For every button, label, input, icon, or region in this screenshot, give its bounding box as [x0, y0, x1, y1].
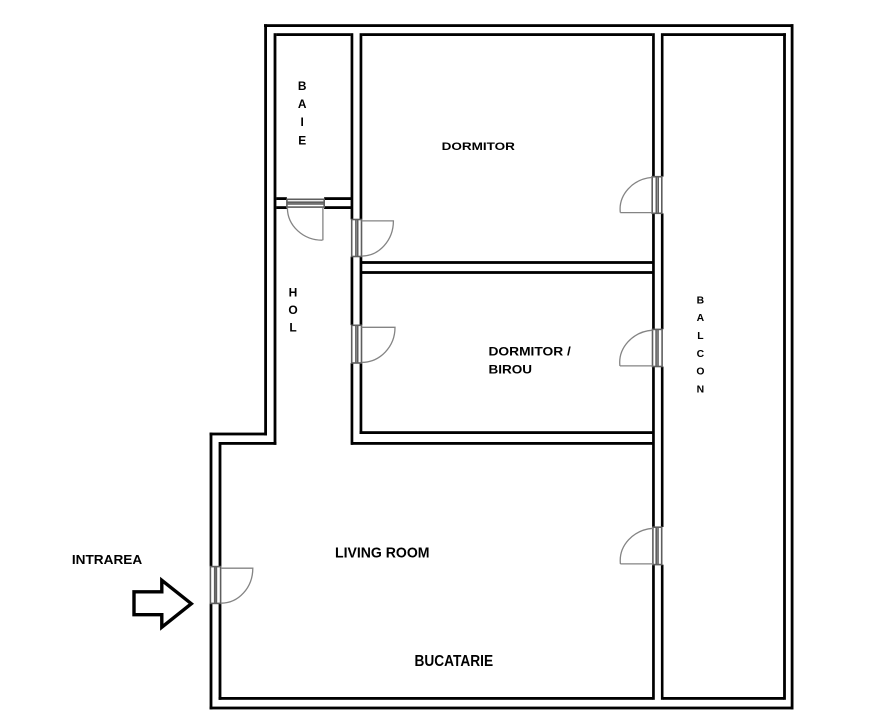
- svg-text:DORMITOR: DORMITOR: [442, 141, 515, 153]
- svg-text:L: L: [289, 321, 296, 335]
- svg-text:INTRAREA: INTRAREA: [72, 552, 142, 567]
- svg-text:E: E: [298, 133, 306, 147]
- svg-text:H: H: [289, 286, 298, 300]
- svg-text:B: B: [298, 79, 307, 93]
- svg-text:LIVING ROOM: LIVING ROOM: [335, 546, 430, 562]
- svg-text:BUCATARIE: BUCATARIE: [415, 653, 494, 670]
- svg-text:N: N: [697, 384, 705, 395]
- svg-text:O: O: [696, 367, 704, 378]
- svg-text:A: A: [697, 313, 705, 324]
- svg-text:B: B: [697, 295, 705, 306]
- svg-text:C: C: [697, 349, 705, 360]
- svg-text:L: L: [697, 331, 704, 342]
- svg-text:BIROU: BIROU: [489, 362, 533, 376]
- svg-text:I: I: [301, 115, 304, 129]
- svg-text:A: A: [298, 97, 307, 111]
- svg-text:DORMITOR /: DORMITOR /: [489, 345, 572, 359]
- svg-text:O: O: [288, 303, 297, 317]
